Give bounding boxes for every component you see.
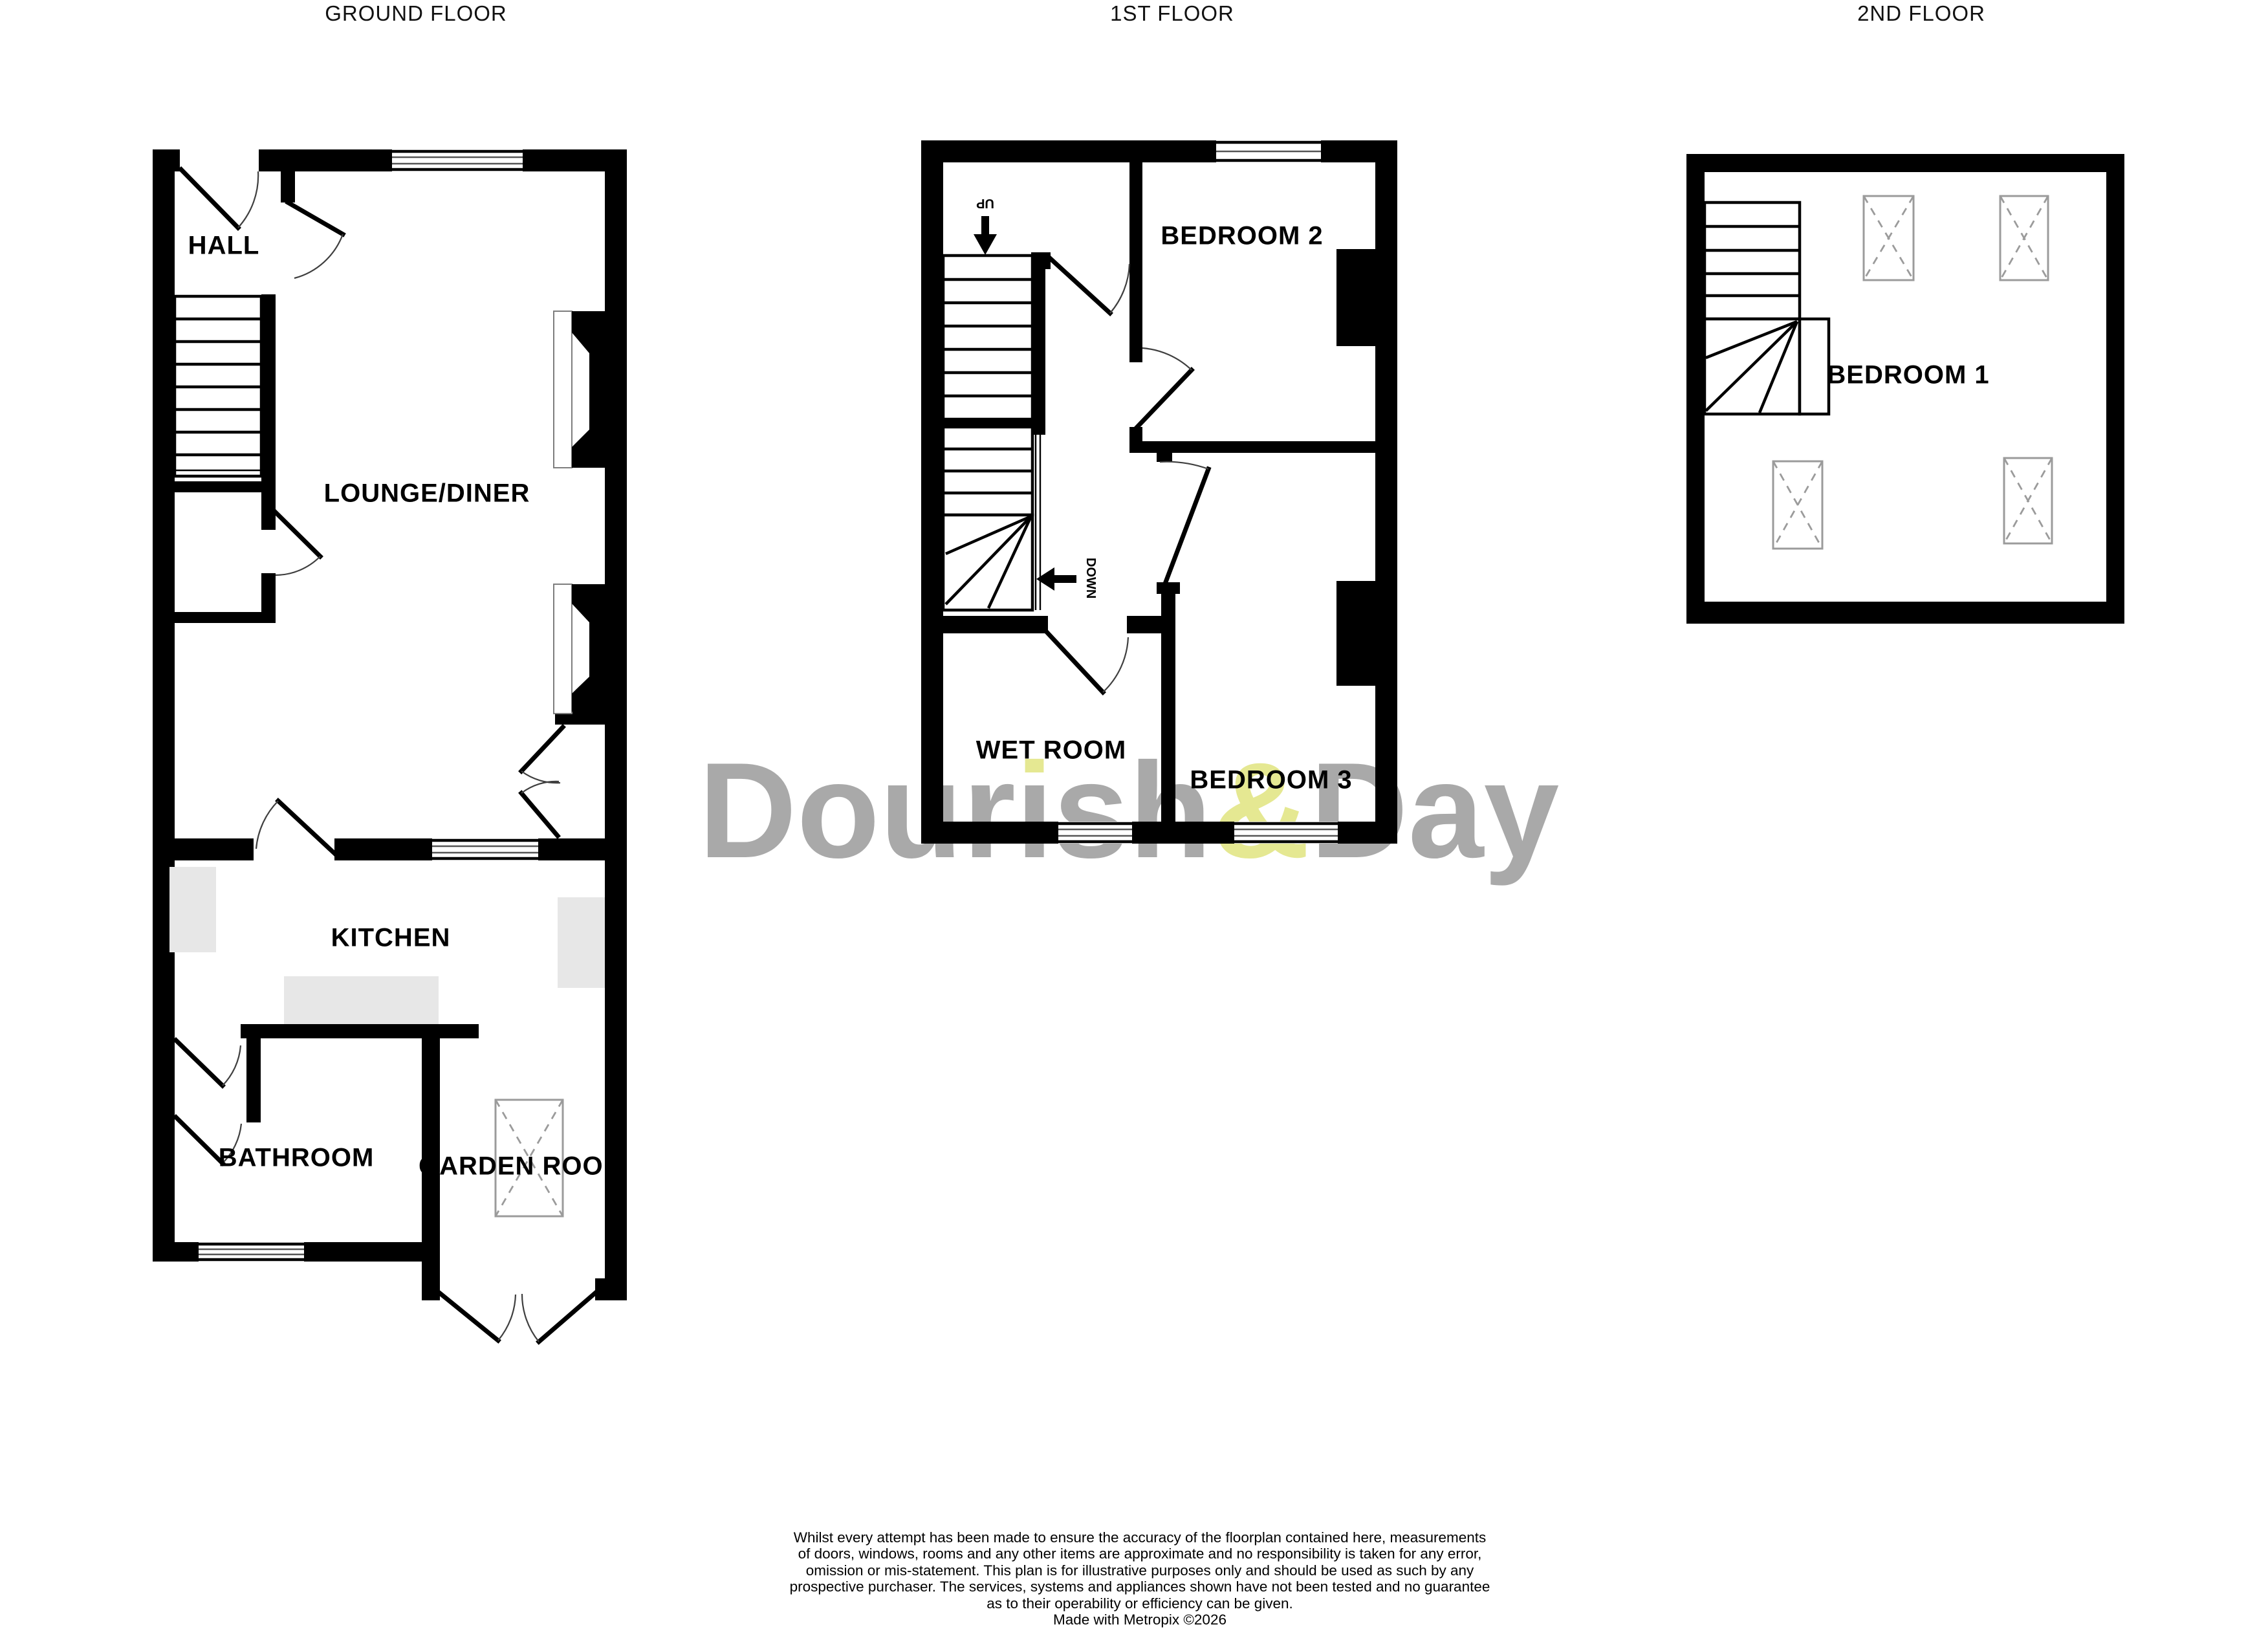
door-swing — [288, 202, 343, 278]
window-symbol — [199, 1242, 304, 1262]
disclaimer-line: as to their operability or efficiency ca… — [719, 1595, 1560, 1612]
up-label: UP — [976, 196, 994, 210]
watermark-part: Dour — [699, 734, 1016, 886]
disclaimer: Whilst every attempt has been made to en… — [719, 1529, 1560, 1628]
skylight-icon — [2000, 196, 2048, 280]
door-swing — [256, 801, 334, 853]
floor-title-first: 1ST FLOOR — [1110, 1, 1234, 26]
room-label-lounge: LOUNGE/DINER — [324, 479, 530, 508]
door-swing — [181, 169, 258, 228]
alcove-recess — [554, 311, 572, 468]
metropix-credit: Made with Metropix ©2026 — [719, 1612, 1560, 1628]
floor-title-second: 2ND FLOOR — [1857, 1, 1985, 26]
disclaimer-line: prospective purchaser. The services, sys… — [719, 1579, 1560, 1595]
door-swing — [1160, 462, 1208, 585]
down-arrow-icon: DOWN — [1036, 558, 1098, 598]
room-label-bedroom1: BEDROOM 1 — [1827, 361, 1989, 390]
kitchen-unit — [284, 976, 439, 1024]
door-swing — [1051, 259, 1129, 313]
window-symbol — [1234, 822, 1338, 844]
window-symbol — [392, 149, 523, 171]
room-label-garden: GARDEN ROOM — [419, 1152, 626, 1181]
kitchen-unit — [169, 867, 216, 952]
floor-title-ground: GROUND FLOOR — [325, 1, 507, 26]
staircase — [1705, 202, 1829, 414]
watermark: Dourısh&Day Dourish&Day — [699, 734, 1559, 886]
alcove-recess — [554, 584, 572, 714]
staircase — [943, 256, 1040, 610]
kitchen-unit — [558, 897, 605, 988]
room-label-bedroom2: BEDROOM 2 — [1161, 222, 1323, 251]
watermark-text: Dourısh&Day — [699, 734, 1559, 886]
disclaimer-line: of doors, windows, rooms and any other i… — [719, 1546, 1560, 1562]
french-doors — [440, 1292, 596, 1342]
watermark-part: Day — [1310, 734, 1559, 886]
floorplan-page: { "headers": { "ground": "GROUND FLOOR",… — [0, 0, 2268, 1629]
room-label-bedroom3: BEDROOM 3 — [1190, 766, 1352, 795]
room-label-kitchen: KITCHEN — [331, 924, 451, 953]
chimney-breast — [572, 311, 605, 468]
window-symbol — [1058, 822, 1132, 844]
room-label-hall: HALL — [188, 232, 260, 261]
up-arrow-icon: UP — [974, 196, 997, 255]
down-label: DOWN — [1084, 558, 1098, 598]
door-swing — [1136, 348, 1192, 428]
window-symbol — [1216, 140, 1321, 162]
room-label-wetroom: WET ROOM — [976, 736, 1126, 765]
window-symbol — [432, 838, 538, 860]
disclaimer-line: omission or mis-statement. This plan is … — [719, 1562, 1560, 1579]
skylight-icon — [1773, 461, 1822, 549]
disclaimer-line: Whilst every attempt has been made to en… — [719, 1529, 1560, 1546]
double-door-swing — [521, 727, 563, 836]
room-label-bathroom: BATHROOM — [219, 1144, 375, 1173]
floorplan-canvas: Dourısh&Day Dourish&Day — [0, 0, 2268, 1629]
door-swing — [276, 512, 320, 575]
door-swing — [176, 1040, 241, 1086]
chimney-breast — [572, 584, 605, 712]
watermark-ampersand: & — [1212, 734, 1310, 886]
door-swing — [1048, 633, 1128, 692]
skylight-icon — [1864, 196, 1914, 280]
staircase — [175, 296, 261, 476]
skylight-icon — [2004, 458, 2052, 543]
